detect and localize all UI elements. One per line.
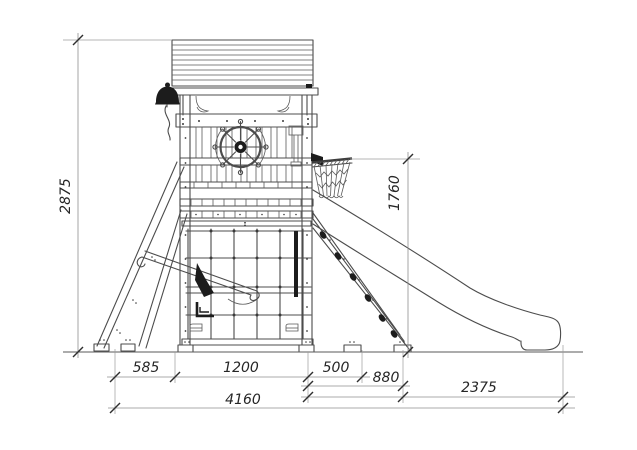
a-frame-ladder [94,162,187,351]
roof [167,40,318,95]
dim-base-row: 585 1200 500 [107,360,370,382]
ship-wheel-icon [213,119,268,174]
dim-label-base-right: 500 [323,360,350,376]
bottom-plank [182,339,313,345]
dim-slide-run: 2375 [301,380,575,402]
dim-label-base-center: 1200 [223,360,259,376]
dim-label-overall-width: 4160 [225,392,261,408]
bell-icon [155,83,180,141]
playground-elevation-drawing: 2875 1760 585 1200 500 880 [0,0,637,450]
dim-label-ramp-run: 880 [373,370,400,386]
dim-overall-height: 2875 [58,33,83,358]
header-beam [176,114,317,127]
dim-label-platform-height: 1760 [387,175,403,211]
dim-label-overall-height: 2875 [58,178,74,214]
basketball-net [314,159,350,198]
mid-rail [180,158,312,165]
bell-rope [165,106,170,140]
dim-label-base-left: 585 [133,360,160,376]
roof-fascia [167,88,318,95]
slide [313,190,561,350]
basketball-hoop-icon [311,153,352,198]
technical-drawing-page: 2875 1760 585 1200 500 880 [0,0,637,450]
dim-overall-width: 4160 [108,392,575,413]
dim-label-slide-run: 2375 [461,380,497,396]
dim-ramp-run: 880 [301,370,410,391]
foundation-pads [178,341,314,352]
deck-boards [180,199,313,226]
play-structure [63,40,583,352]
telescope-icon [289,126,303,166]
balustrade [180,127,312,188]
dim-platform-height: 1760 [387,152,413,358]
